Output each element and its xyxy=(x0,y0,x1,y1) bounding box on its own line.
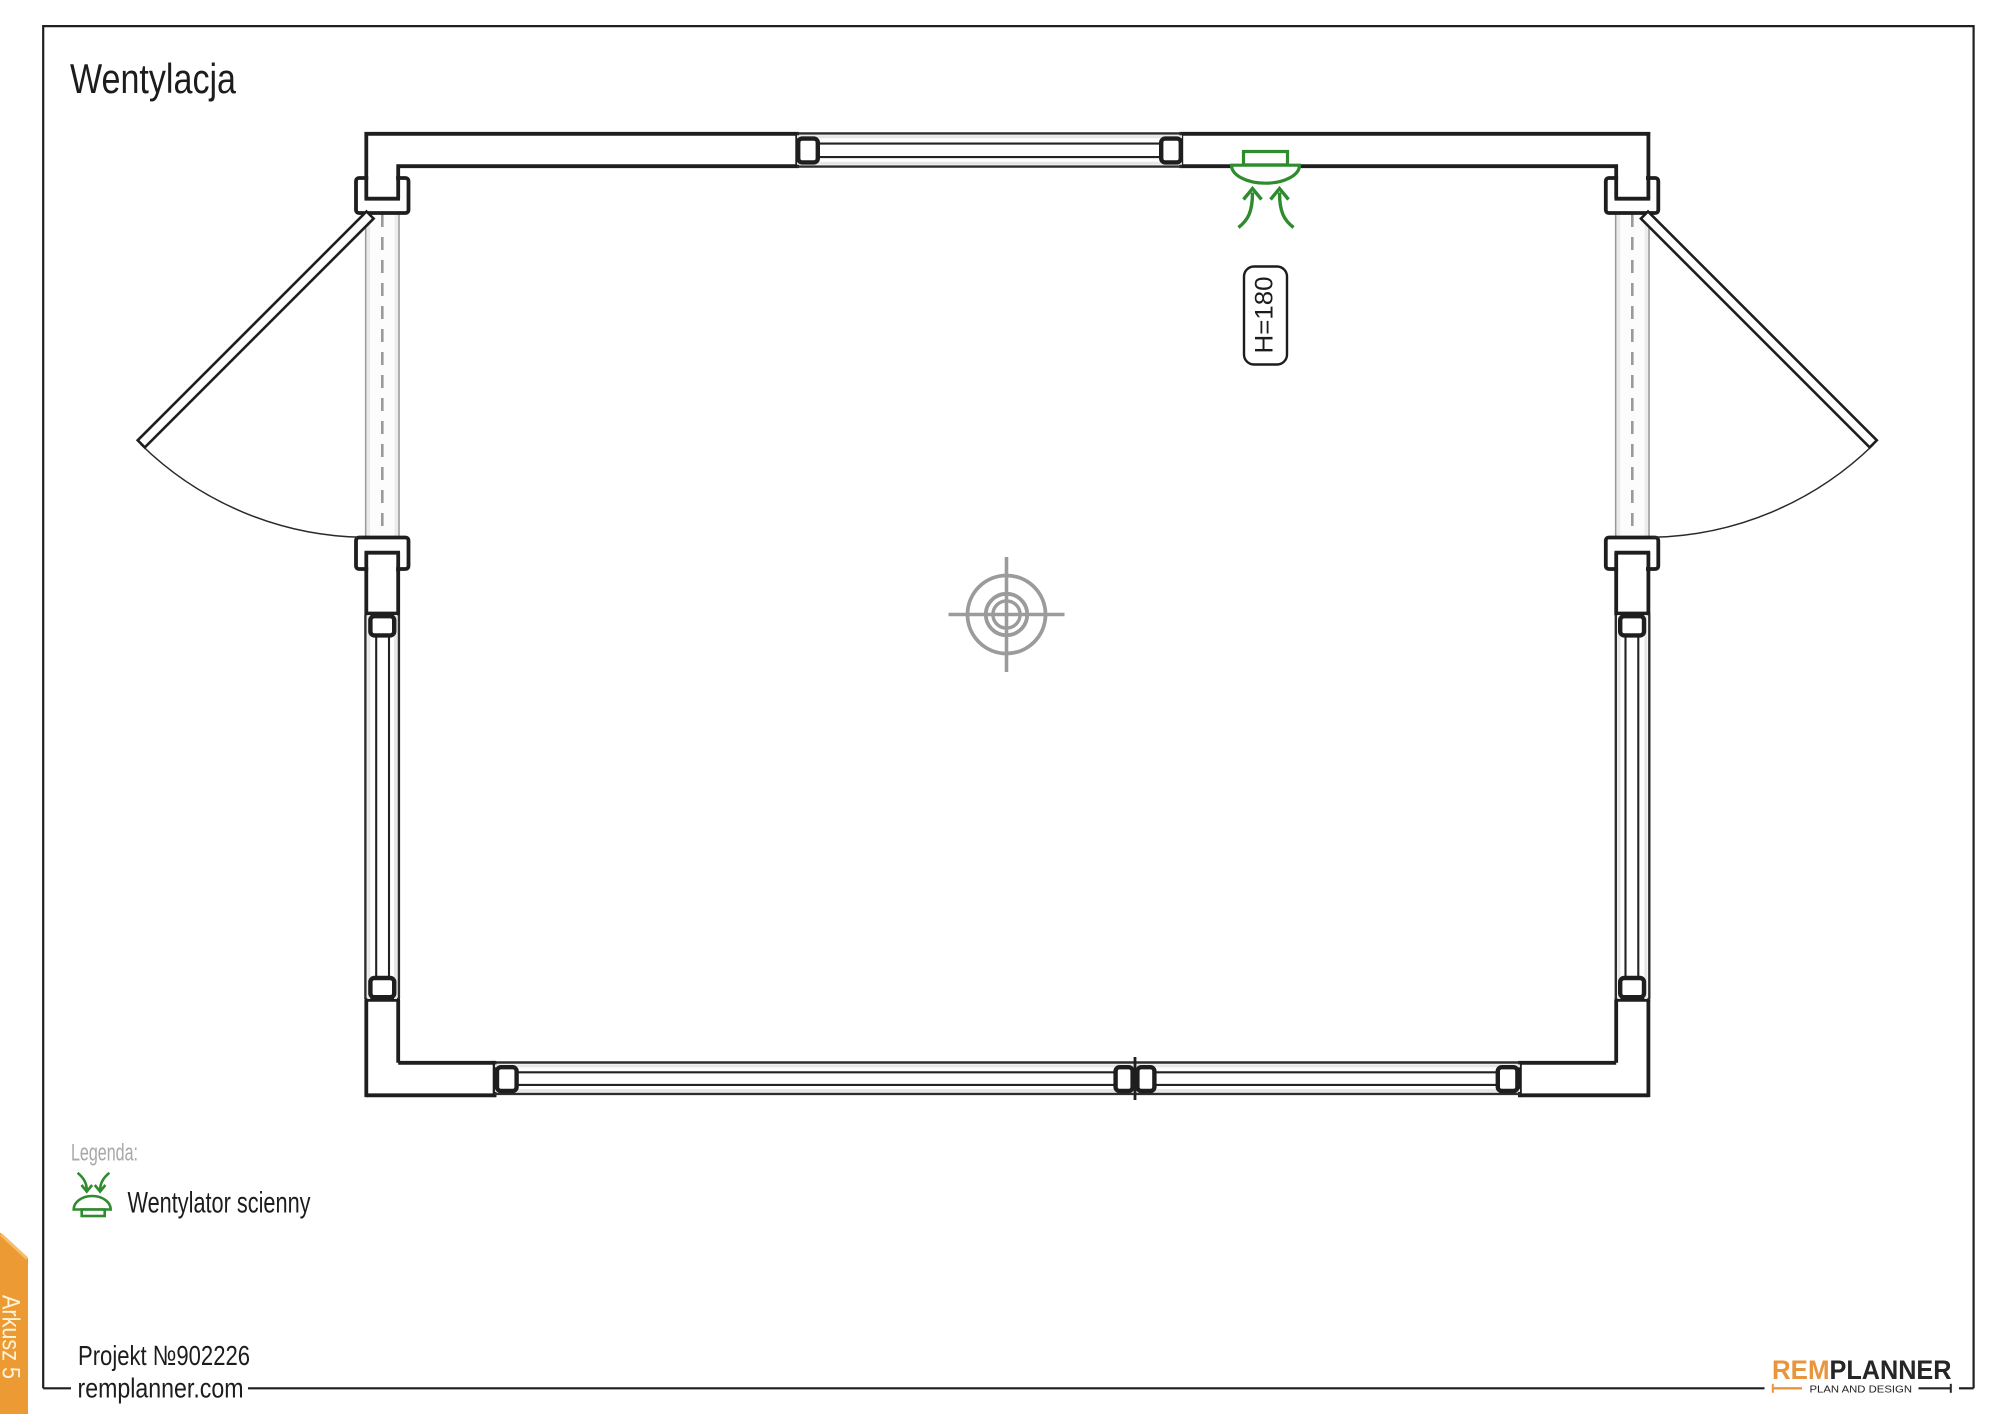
svg-text:Legenda:: Legenda: xyxy=(71,1140,138,1167)
svg-text:remplanner.com: remplanner.com xyxy=(78,1373,244,1404)
svg-text:H=180: H=180 xyxy=(1251,277,1279,354)
svg-text:PLAN AND DESIGN: PLAN AND DESIGN xyxy=(1810,1384,1913,1396)
svg-text:REM: REM xyxy=(1772,1355,1830,1385)
svg-text:Projekt №902226: Projekt №902226 xyxy=(78,1340,250,1371)
svg-text:Wentylator scienny: Wentylator scienny xyxy=(128,1187,311,1220)
svg-text:Wentylacja: Wentylacja xyxy=(70,55,237,102)
svg-text:PLANNER: PLANNER xyxy=(1830,1355,1952,1385)
svg-text:Arkusz 5: Arkusz 5 xyxy=(0,1295,25,1379)
